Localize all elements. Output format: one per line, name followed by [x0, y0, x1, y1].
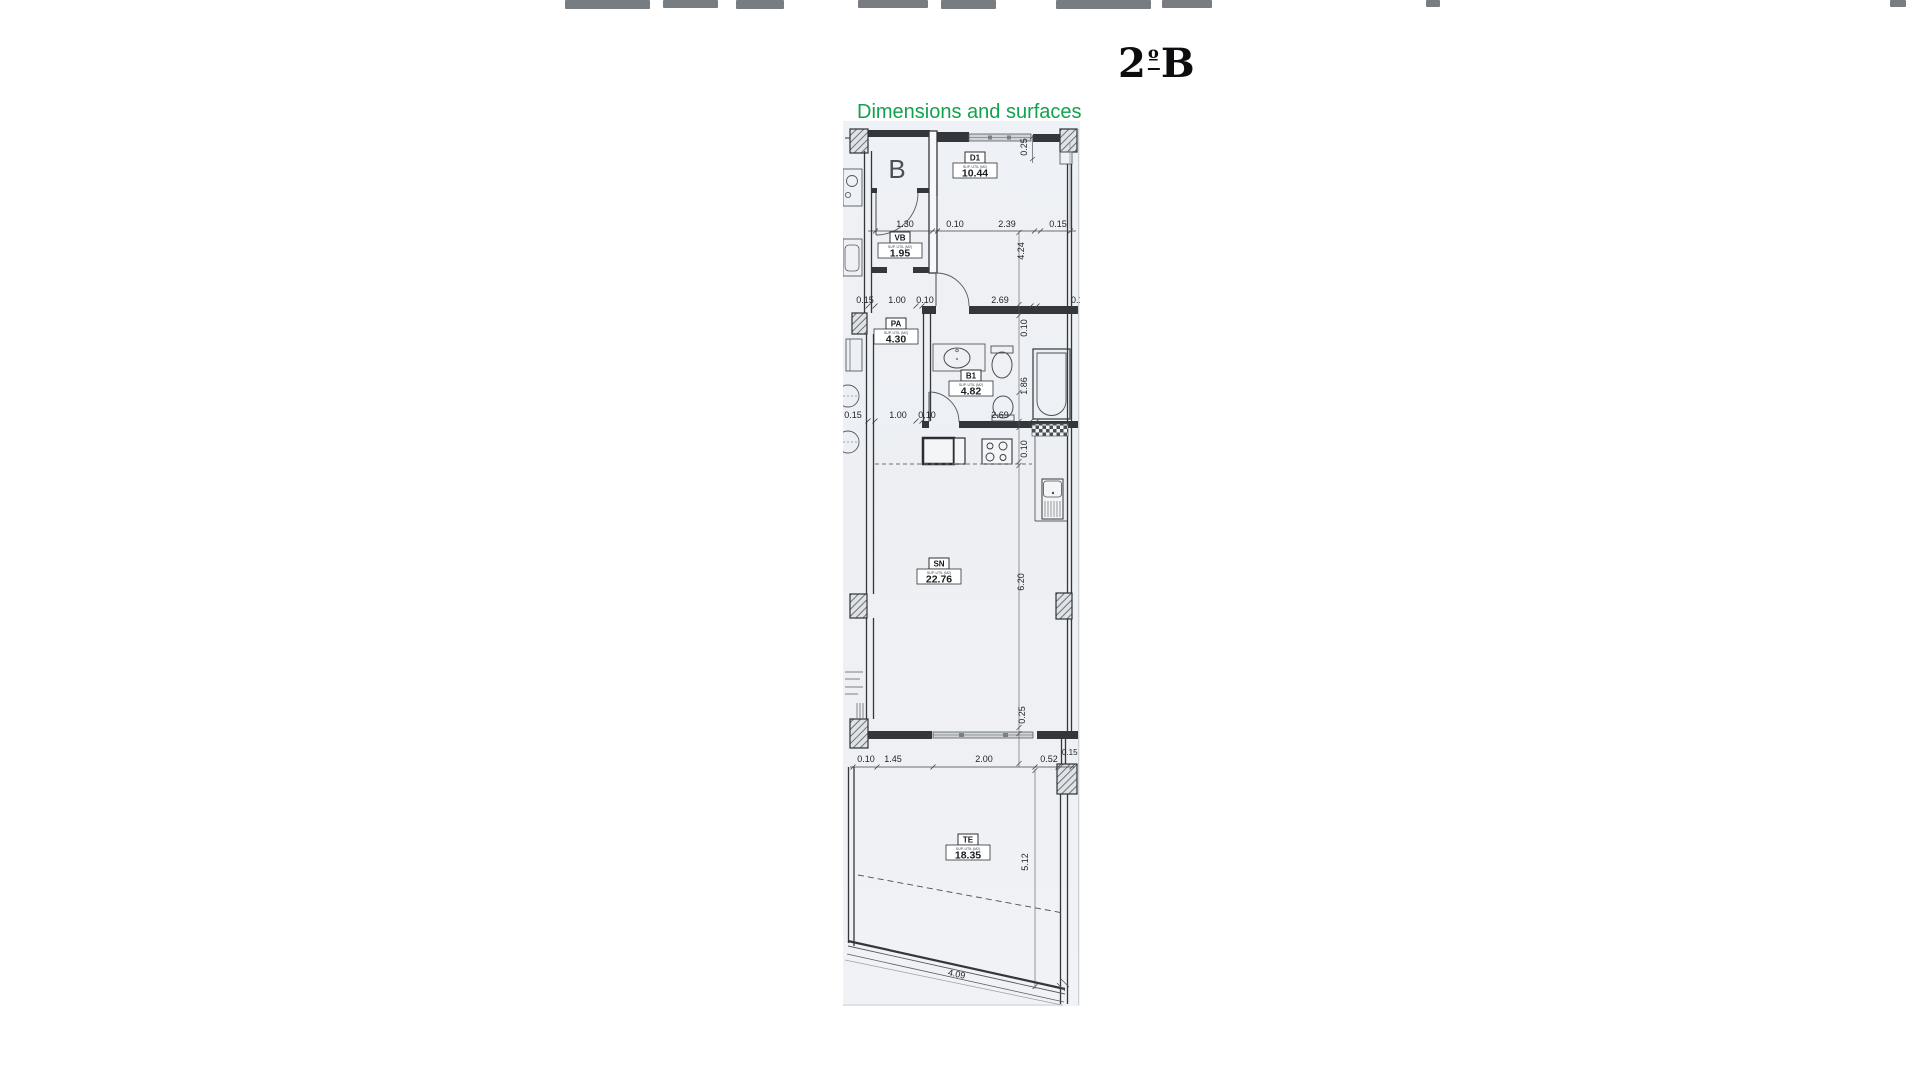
stove [843, 169, 862, 206]
pillar [1057, 764, 1077, 794]
room-code: D1 [970, 154, 981, 163]
title-letter: B [1161, 40, 1196, 87]
dim-label: 0.15 [1071, 295, 1080, 305]
dim-label: 1.30 [896, 219, 914, 229]
dim-label: 2.00 [975, 754, 993, 764]
room-code: SN [933, 560, 944, 569]
room-area: 22.76 [926, 574, 952, 586]
dim-label: 2.69 [991, 295, 1009, 305]
dim-label: 0.10 [918, 410, 936, 420]
room-code: TE [963, 836, 974, 845]
dim-label: 2.69 [991, 410, 1009, 420]
pillar [1056, 593, 1072, 619]
dim-label: 0.15 [1049, 219, 1067, 229]
dim-label: 0.10 [916, 295, 934, 305]
dim-label: 0.10 [1019, 319, 1029, 337]
pillar [850, 719, 868, 748]
kitchen-unit [954, 438, 965, 464]
dim-label: 1.00 [889, 410, 907, 420]
room-label-te: TE SUP. UTIL (M2) 18.35 [946, 834, 990, 862]
tiled-strip [1032, 424, 1068, 436]
dim-label: 0.15 [856, 295, 874, 305]
dim-label: 1.45 [884, 754, 902, 764]
dim-label: 0.10 [857, 754, 875, 764]
duct-lines [845, 672, 863, 694]
floor-plan-svg: B D1 SUP. UTIL (M2) 10.44 VB SUP. UTIL (… [843, 121, 1080, 1006]
dim-label: 1.86 [1019, 377, 1029, 395]
room-area: 10.44 [962, 168, 988, 180]
dim-label: 6.20 [1016, 573, 1026, 591]
neighbor-fixtures [843, 169, 863, 718]
page: 2ºB Dimensions and surfaces [0, 0, 1920, 1080]
page-title: 2ºB [1118, 40, 1196, 87]
dim-label: 4.24 [1016, 242, 1026, 260]
bedroom-door [936, 273, 969, 306]
dim-label: 0.25 [1017, 706, 1027, 724]
room-area: 18.35 [955, 850, 981, 862]
dim-label: 2.39 [998, 219, 1016, 229]
floor-plan: B D1 SUP. UTIL (M2) 10.44 VB SUP. UTIL (… [843, 121, 1080, 1006]
room-label-b1: B1 SUP. UTIL (M2) 4.82 [949, 370, 993, 398]
pillar [850, 594, 867, 618]
dim-label: 1.00 [888, 295, 906, 305]
pillar [852, 313, 867, 334]
terrace-dashed-line [858, 875, 1063, 913]
dim-label: 4.09 [947, 967, 966, 981]
room-code: VB [894, 234, 905, 243]
room-code: B1 [966, 372, 977, 381]
title-ordinal: º [1148, 46, 1160, 72]
room-area: 4.82 [961, 386, 982, 398]
dim-label: 0.25 [1019, 138, 1029, 156]
dim-label: 0.10 [946, 219, 964, 229]
pillar [1060, 129, 1077, 152]
apartment-letter: B [888, 154, 905, 184]
kitchen-unit [923, 438, 954, 464]
room-label-pa: PA SUP. UTIL (M2) 4.30 [874, 318, 918, 346]
dim-label: 0.15 [844, 410, 862, 420]
dim-label: 0.10 [1019, 440, 1029, 458]
pillar [850, 129, 868, 153]
room-label-vb: VB SUP. UTIL (M2) 1.95 [878, 232, 922, 260]
dim-label: 0.52 [1040, 754, 1058, 764]
room-label-d1: D1 SUP. UTIL (M2) 10.44 [953, 152, 997, 180]
room-area: 4.30 [886, 334, 907, 346]
wall-lines [845, 129, 1079, 1005]
cabinet [846, 339, 862, 371]
toilet [992, 352, 1012, 378]
room-code: PA [891, 320, 902, 329]
washbasin [944, 348, 970, 368]
dim-label: 0.15 [1062, 748, 1078, 757]
room-area: 1.95 [890, 248, 911, 260]
dim-label: 5.12 [1020, 853, 1030, 871]
cooktop [982, 439, 1012, 464]
railing [848, 941, 1065, 989]
title-number: 2 [1118, 40, 1147, 87]
room-label-sn: SN SUP. UTIL (M2) 22.76 [917, 558, 961, 586]
